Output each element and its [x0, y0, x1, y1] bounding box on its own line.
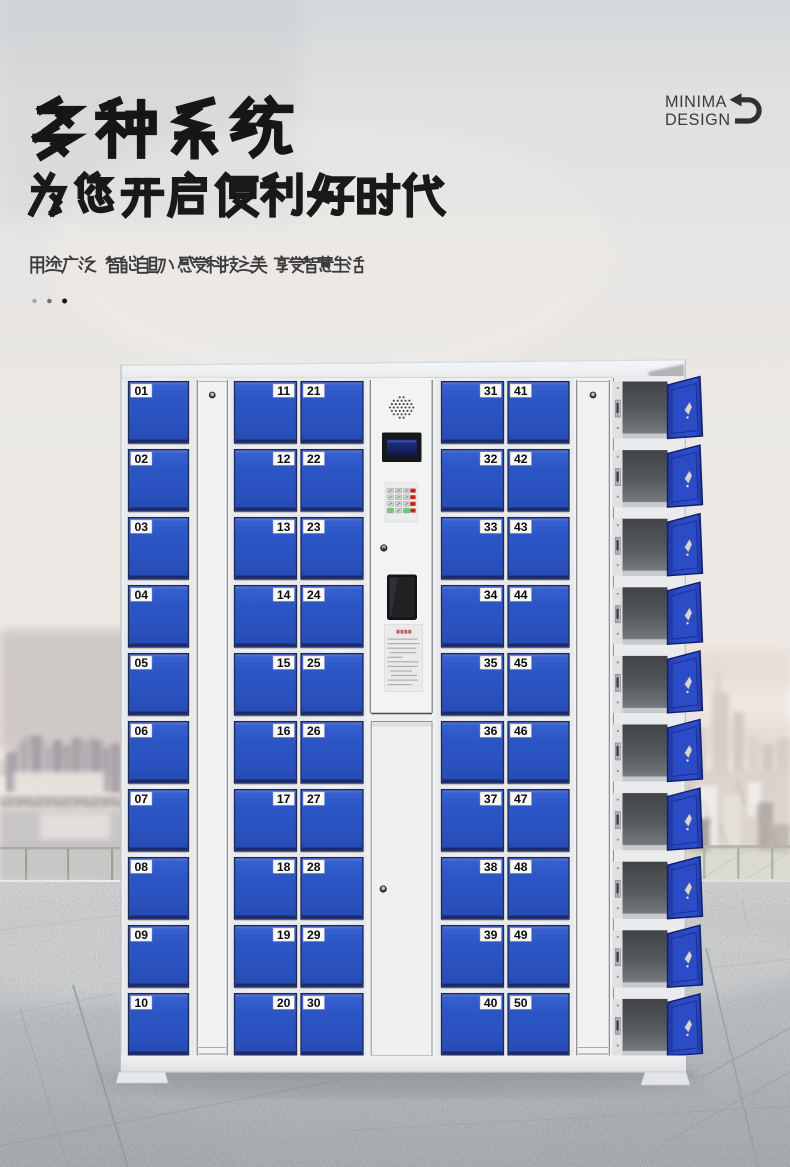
svg-text:37: 37 — [484, 792, 498, 806]
svg-text:29: 29 — [307, 928, 321, 942]
svg-text:22: 22 — [307, 452, 321, 466]
svg-text:43: 43 — [514, 520, 528, 534]
svg-text:49: 49 — [514, 928, 528, 942]
svg-text:28: 28 — [307, 860, 321, 874]
svg-text:42: 42 — [514, 452, 528, 466]
svg-text:15: 15 — [277, 656, 291, 670]
svg-text:DESIGN: DESIGN — [665, 111, 731, 129]
svg-text:23: 23 — [307, 520, 321, 534]
svg-text:04: 04 — [135, 588, 149, 602]
svg-text:20: 20 — [277, 996, 291, 1010]
svg-text:26: 26 — [307, 724, 321, 738]
svg-text:14: 14 — [277, 588, 291, 602]
svg-text:12: 12 — [277, 452, 291, 466]
svg-text:03: 03 — [135, 520, 149, 534]
svg-text:31: 31 — [484, 384, 498, 398]
svg-text:02: 02 — [135, 452, 149, 466]
svg-text:24: 24 — [307, 588, 321, 602]
svg-text:39: 39 — [484, 928, 498, 942]
svg-text:19: 19 — [277, 928, 291, 942]
svg-text:10: 10 — [135, 996, 149, 1010]
svg-text:45: 45 — [514, 656, 528, 670]
svg-text:36: 36 — [484, 724, 498, 738]
svg-text:17: 17 — [277, 792, 291, 806]
svg-text:16: 16 — [277, 724, 291, 738]
svg-text:35: 35 — [484, 656, 498, 670]
svg-text:27: 27 — [307, 792, 321, 806]
svg-text:05: 05 — [135, 656, 149, 670]
svg-text:01: 01 — [135, 384, 149, 398]
svg-text:13: 13 — [277, 520, 291, 534]
svg-text:34: 34 — [484, 588, 498, 602]
svg-text:41: 41 — [514, 384, 528, 398]
svg-text:32: 32 — [484, 452, 498, 466]
svg-text:47: 47 — [514, 792, 528, 806]
svg-text:38: 38 — [484, 860, 498, 874]
svg-text:46: 46 — [514, 724, 528, 738]
svg-text:08: 08 — [135, 860, 149, 874]
svg-text:40: 40 — [484, 996, 498, 1010]
svg-text:25: 25 — [307, 656, 321, 670]
svg-text:21: 21 — [307, 384, 321, 398]
svg-text:11: 11 — [277, 384, 290, 398]
svg-text:33: 33 — [484, 520, 498, 534]
svg-text:06: 06 — [135, 724, 149, 738]
svg-text:48: 48 — [514, 860, 528, 874]
svg-text:07: 07 — [135, 792, 149, 806]
svg-text:30: 30 — [307, 996, 321, 1010]
svg-text:MINIMA: MINIMA — [665, 93, 727, 111]
svg-text:09: 09 — [135, 928, 149, 942]
svg-text:44: 44 — [514, 588, 528, 602]
svg-text:50: 50 — [514, 996, 528, 1010]
svg-text:18: 18 — [277, 860, 291, 874]
